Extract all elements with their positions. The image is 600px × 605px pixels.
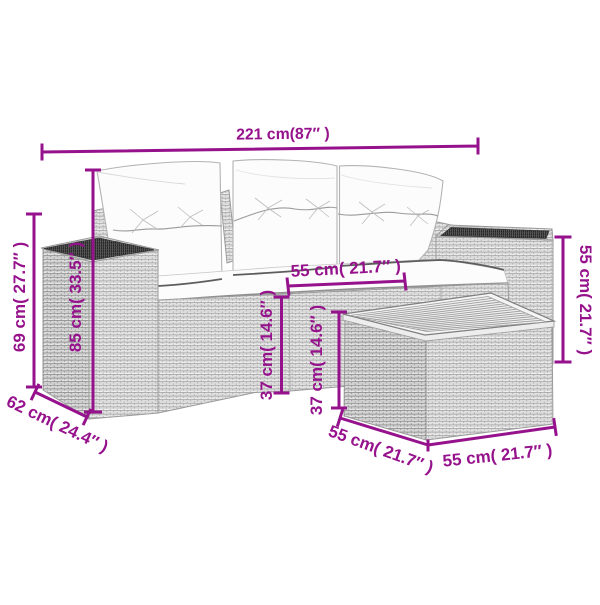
svg-text:85 cm( 33.5″ ): 85 cm( 33.5″ ) bbox=[66, 242, 85, 352]
svg-text:37 cm( 14.6″ ): 37 cm( 14.6″ ) bbox=[257, 290, 276, 400]
svg-text:55 cm( 21.7″ ): 55 cm( 21.7″ ) bbox=[576, 245, 595, 355]
svg-text:37 cm( 14.6″ ): 37 cm( 14.6″ ) bbox=[307, 305, 326, 415]
svg-text:221 cm(87″ ): 221 cm(87″ ) bbox=[236, 125, 330, 143]
svg-text:69 cm( 27.7″ ): 69 cm( 27.7″ ) bbox=[10, 242, 29, 352]
